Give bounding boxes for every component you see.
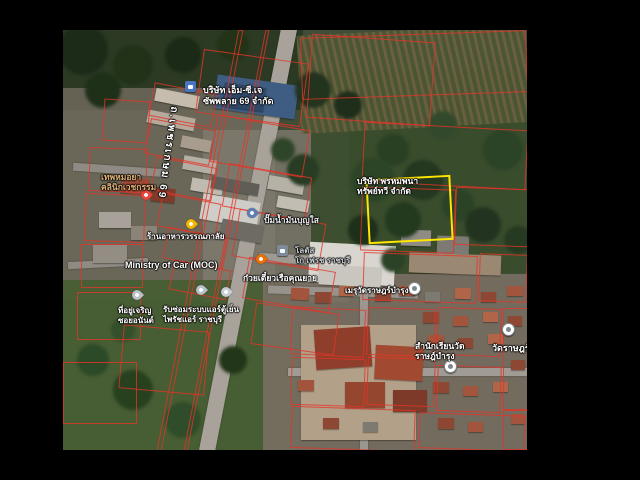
label-line: ราษฎ์บำรุง	[415, 351, 464, 361]
gray-poi-pin-3-icon[interactable]	[221, 287, 231, 297]
label-line: สำนักเรียนวัด	[415, 341, 464, 351]
label-line: ที่อยู่เจริญ	[118, 306, 154, 316]
pin-glyph	[280, 249, 285, 253]
lotus-store-icon-icon[interactable]	[277, 245, 288, 256]
company-briefcase-icon	[185, 81, 196, 92]
label-line: ซอยอนันต์	[118, 316, 154, 326]
pin-glyph	[448, 364, 453, 369]
map-label-meru-wat[interactable]: เมรุวัดราษฎร์บำรุง	[345, 286, 409, 296]
map-label-aircon-repair[interactable]: รับซ่อมระบบแอร์ตู้เย็นไพรัชแอร์ ราชบุรี	[163, 305, 239, 324]
gray-poi-pin-3	[219, 285, 233, 299]
restaurant-yellow-pin-icon[interactable]	[186, 219, 196, 229]
map-label-school-wat[interactable]: สำนักเรียนวัดราษฎ์บำรุง	[415, 341, 464, 361]
pin-glyph	[412, 286, 417, 291]
map-label-lotus-gofresh[interactable]: โลตัสโก เฟรช ราชบุรี	[295, 246, 350, 265]
gray-poi-pin-1-icon[interactable]	[132, 290, 142, 300]
label-line: คลินิกเวชกรรม	[101, 182, 156, 192]
label-line: บริษัท พรหมพนา	[357, 176, 418, 186]
pin-glyph	[188, 221, 194, 227]
label-line: ไพรัชแอร์ ราชบุรี	[163, 315, 239, 325]
cadastral-parcel-line	[84, 193, 146, 243]
map-label-address-poi[interactable]: ที่อยู่เจริญซอยอนันต์	[118, 306, 154, 325]
cadastral-parcel-line	[366, 357, 436, 407]
gray-poi-pin-2	[194, 283, 208, 297]
restaurant-yellow-pin	[184, 217, 198, 231]
map-label-restaurant-wannaphalai[interactable]: ร้านอาหารวรรณภาลัย	[147, 232, 224, 242]
pin-glyph	[198, 287, 204, 293]
cadastral-parcel-line	[454, 187, 527, 248]
label-line: บริษัท เอ็ม-ซี.เจ	[203, 85, 273, 96]
screenshot-stage: บริษัท เอ็ม-ซี.เจซัพพลาย 69 จำกัดถ.เพชรเ…	[0, 0, 640, 480]
label-line: ปั๊มน้ำมันบุญใส	[264, 215, 319, 225]
pin-glyph	[134, 292, 140, 298]
noodle-restaurant-pin	[254, 252, 268, 266]
label-line: ก๋วยเตี๋ยวเรือคุณยาย	[243, 273, 317, 283]
pin-glyph	[223, 289, 229, 295]
noodle-restaurant-pin-icon[interactable]	[256, 254, 266, 264]
school-circle-pin-icon[interactable]	[444, 360, 457, 373]
tree-canopy	[219, 346, 247, 374]
gray-poi-pin-1	[130, 288, 144, 302]
school-circle-pin	[444, 360, 457, 373]
pin-glyph	[506, 327, 511, 332]
meru-circle-pin	[408, 282, 421, 295]
label-line: ซัพพลาย 69 จำกัด	[203, 96, 273, 107]
map-label-company-mcj[interactable]: บริษัท เอ็ม-ซี.เจซัพพลาย 69 จำกัด	[203, 85, 273, 107]
cadastral-parcel-line	[300, 30, 527, 100]
cadastral-parcel-line	[290, 306, 366, 358]
gas-station-pin	[245, 206, 259, 220]
label-line: โลตัส	[295, 246, 350, 256]
pin-glyph	[143, 192, 149, 198]
temple-circle-pin	[502, 323, 515, 336]
map-label-clinic[interactable]: เทพหมอยาคลินิกเวชกรรม	[101, 172, 156, 192]
cadastral-parcel-line	[102, 98, 151, 143]
map-label-company-plot[interactable]: บริษัท พรหมพนาทรัพย์ทวี จำกัด	[357, 176, 418, 196]
label-line: ร้านอาหารวรรณภาลัย	[147, 232, 224, 242]
gray-poi-pin-2-icon[interactable]	[196, 285, 206, 295]
label-line: ทรัพย์ทวี จำกัด	[357, 186, 418, 196]
label-line: Ministry of Car (MOC)	[125, 260, 218, 271]
cadastral-parcel-line	[290, 357, 366, 408]
cadastral-parcel-line	[290, 406, 415, 450]
satellite-map-viewport[interactable]: บริษัท เอ็ม-ซี.เจซัพพลาย 69 จำกัดถ.เพชรเ…	[63, 30, 527, 450]
company-briefcase-icon-icon[interactable]	[185, 81, 196, 92]
map-label-ministry-of-car[interactable]: Ministry of Car (MOC)	[125, 260, 218, 271]
label-line: รับซ่อมระบบแอร์ตู้เย็น	[163, 305, 239, 315]
gas-station-pin-icon[interactable]	[247, 208, 257, 218]
cadastral-parcel-line	[63, 362, 137, 424]
label-line: โก เฟรช ราชบุรี	[295, 256, 350, 266]
tree-canopy	[165, 37, 201, 73]
map-label-gas-station[interactable]: ปั๊มน้ำมันบุญใส	[264, 215, 319, 225]
cadastral-parcel-line	[478, 253, 527, 303]
tree-canopy	[113, 45, 153, 85]
pin-glyph	[249, 210, 255, 216]
map-label-noodle-boat[interactable]: ก๋วยเตี๋ยวเรือคุณยาย	[243, 273, 317, 283]
label-line: เมรุวัดราษฎร์บำรุง	[345, 286, 409, 296]
cadastral-parcel-line	[503, 410, 527, 450]
label-line: เทพหมอยา	[101, 172, 156, 182]
lotus-store-icon	[277, 245, 288, 256]
map-label-wat-rat[interactable]: วัดราษฎร์	[492, 343, 527, 354]
pin-glyph	[188, 85, 193, 89]
pin-glyph	[258, 256, 264, 262]
label-line: วัดราษฎร์	[492, 343, 527, 354]
cadastral-parcel-line	[362, 252, 478, 304]
meru-circle-pin-icon[interactable]	[408, 282, 421, 295]
temple-circle-pin-icon[interactable]	[502, 323, 515, 336]
